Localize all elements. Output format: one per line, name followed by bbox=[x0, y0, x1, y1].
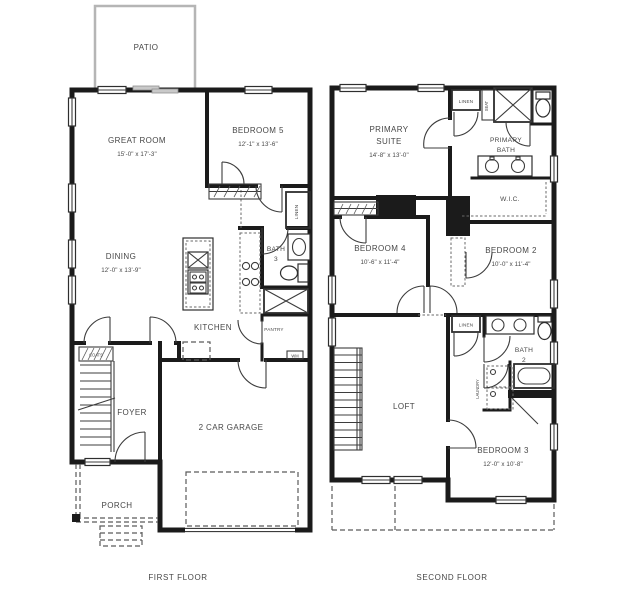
bedroom3-label: BEDROOM 3 bbox=[477, 446, 529, 455]
second-floor-stairs bbox=[334, 348, 362, 450]
garage-parking-dashed bbox=[186, 472, 298, 526]
wall-block-bedroom3 bbox=[508, 390, 554, 398]
bath2-toilet bbox=[538, 323, 551, 340]
floorplan-page: PATIO GREAT ROOM 15'-0" x 17'-3" BEDROOM… bbox=[0, 0, 636, 600]
primary-toilet bbox=[536, 92, 550, 117]
bath2-label: BATH bbox=[515, 347, 533, 354]
primary-bath-label-1: PRIMARY bbox=[490, 137, 522, 144]
bath3-toilet bbox=[281, 266, 298, 280]
first-floor-plan: PATIO GREAT ROOM 15'-0" x 17'-3" BEDROOM… bbox=[69, 6, 311, 582]
bedroom5-dims: 12'-1" x 13'-6" bbox=[238, 141, 278, 148]
porch-label: PORCH bbox=[102, 501, 133, 510]
bath2-vanity bbox=[486, 316, 534, 334]
primary-suite-dims: 14'-8" x 13'-0" bbox=[369, 152, 409, 159]
first-floor-caption: FIRST FLOOR bbox=[148, 573, 207, 582]
great-room-label: GREAT ROOM bbox=[108, 136, 166, 145]
second-floor-plan: PRIMARY SUITE 14'-8" x 13'-0" LINEN SEAT… bbox=[329, 85, 558, 583]
primary-shower bbox=[494, 88, 532, 122]
wall-block-hall bbox=[446, 196, 470, 236]
wall-block-suite bbox=[376, 195, 416, 217]
pantry-label: PANTRY bbox=[264, 327, 283, 332]
bath2-number: 2 bbox=[522, 357, 526, 364]
second-floor-caption: SECOND FLOOR bbox=[416, 573, 487, 582]
linen-label-first: LINEN bbox=[294, 205, 299, 220]
foyer-label: FOYER bbox=[117, 408, 147, 417]
bedroom5-label: BEDROOM 5 bbox=[232, 126, 284, 135]
primary-suite-label-2: SUITE bbox=[376, 137, 402, 146]
bath2-toilet-tank bbox=[538, 316, 551, 322]
bedroom4-label: BEDROOM 4 bbox=[354, 244, 406, 253]
bedroom3-dims: 12'-0" x 10'-8" bbox=[483, 461, 523, 468]
second-floor-windows bbox=[329, 85, 558, 504]
kitchen-counter bbox=[240, 233, 260, 313]
primary-vanity bbox=[478, 156, 532, 176]
wm-label: WM bbox=[291, 354, 299, 359]
laundry-label: LAUNDRY bbox=[475, 379, 480, 399]
kitchen-label: KITCHEN bbox=[194, 323, 232, 332]
linen-mid-label: LINEN bbox=[459, 323, 474, 328]
seat-label: SEAT bbox=[484, 100, 489, 111]
primary-bath-label-2: BATH bbox=[497, 147, 515, 154]
garage-door-opening bbox=[185, 527, 295, 534]
loft-label: LOFT bbox=[393, 402, 415, 411]
first-floor-doors bbox=[84, 162, 288, 462]
bedroom2-dims: 10'-0" x 11'-4" bbox=[491, 261, 530, 268]
bath3-label: BATH bbox=[267, 246, 285, 253]
coats-label: COATS bbox=[89, 353, 103, 358]
garage-label: 2 CAR GARAGE bbox=[199, 423, 264, 432]
kitchen-entry-dashed bbox=[183, 342, 210, 360]
bedroom2-closet bbox=[451, 238, 465, 286]
first-floor-secondary-walls bbox=[262, 287, 310, 360]
linen-top-label: LINEN bbox=[459, 99, 474, 104]
dining-label: DINING bbox=[106, 252, 136, 261]
bedroom4-dims: 10'-6" x 11'-4" bbox=[360, 259, 399, 266]
second-floor-exterior-walls bbox=[332, 88, 554, 500]
first-floor-stairs bbox=[78, 347, 115, 452]
bedroom2-label: BEDROOM 2 bbox=[485, 246, 537, 255]
bath2-tub-inner bbox=[518, 368, 550, 384]
primary-closet bbox=[334, 202, 378, 215]
kitchen-island bbox=[183, 238, 213, 310]
roofline-dashed bbox=[332, 486, 554, 530]
primary-suite-label-1: PRIMARY bbox=[369, 125, 408, 134]
bath3-number: 3 bbox=[274, 256, 278, 263]
porch-steps bbox=[100, 526, 142, 546]
bath3-toilet-tank bbox=[298, 264, 308, 282]
wic-label: W.I.C. bbox=[500, 196, 520, 203]
floorplan-canvas: PATIO GREAT ROOM 15'-0" x 17'-3" BEDROOM… bbox=[0, 0, 636, 600]
patio-label: PATIO bbox=[134, 43, 159, 52]
bath3-vanity bbox=[288, 234, 310, 260]
dining-dims: 12'-0" x 13'-9" bbox=[101, 267, 141, 274]
second-floor-interior-walls bbox=[332, 88, 554, 500]
great-room-dims: 15'-0" x 17'-3" bbox=[117, 151, 157, 158]
